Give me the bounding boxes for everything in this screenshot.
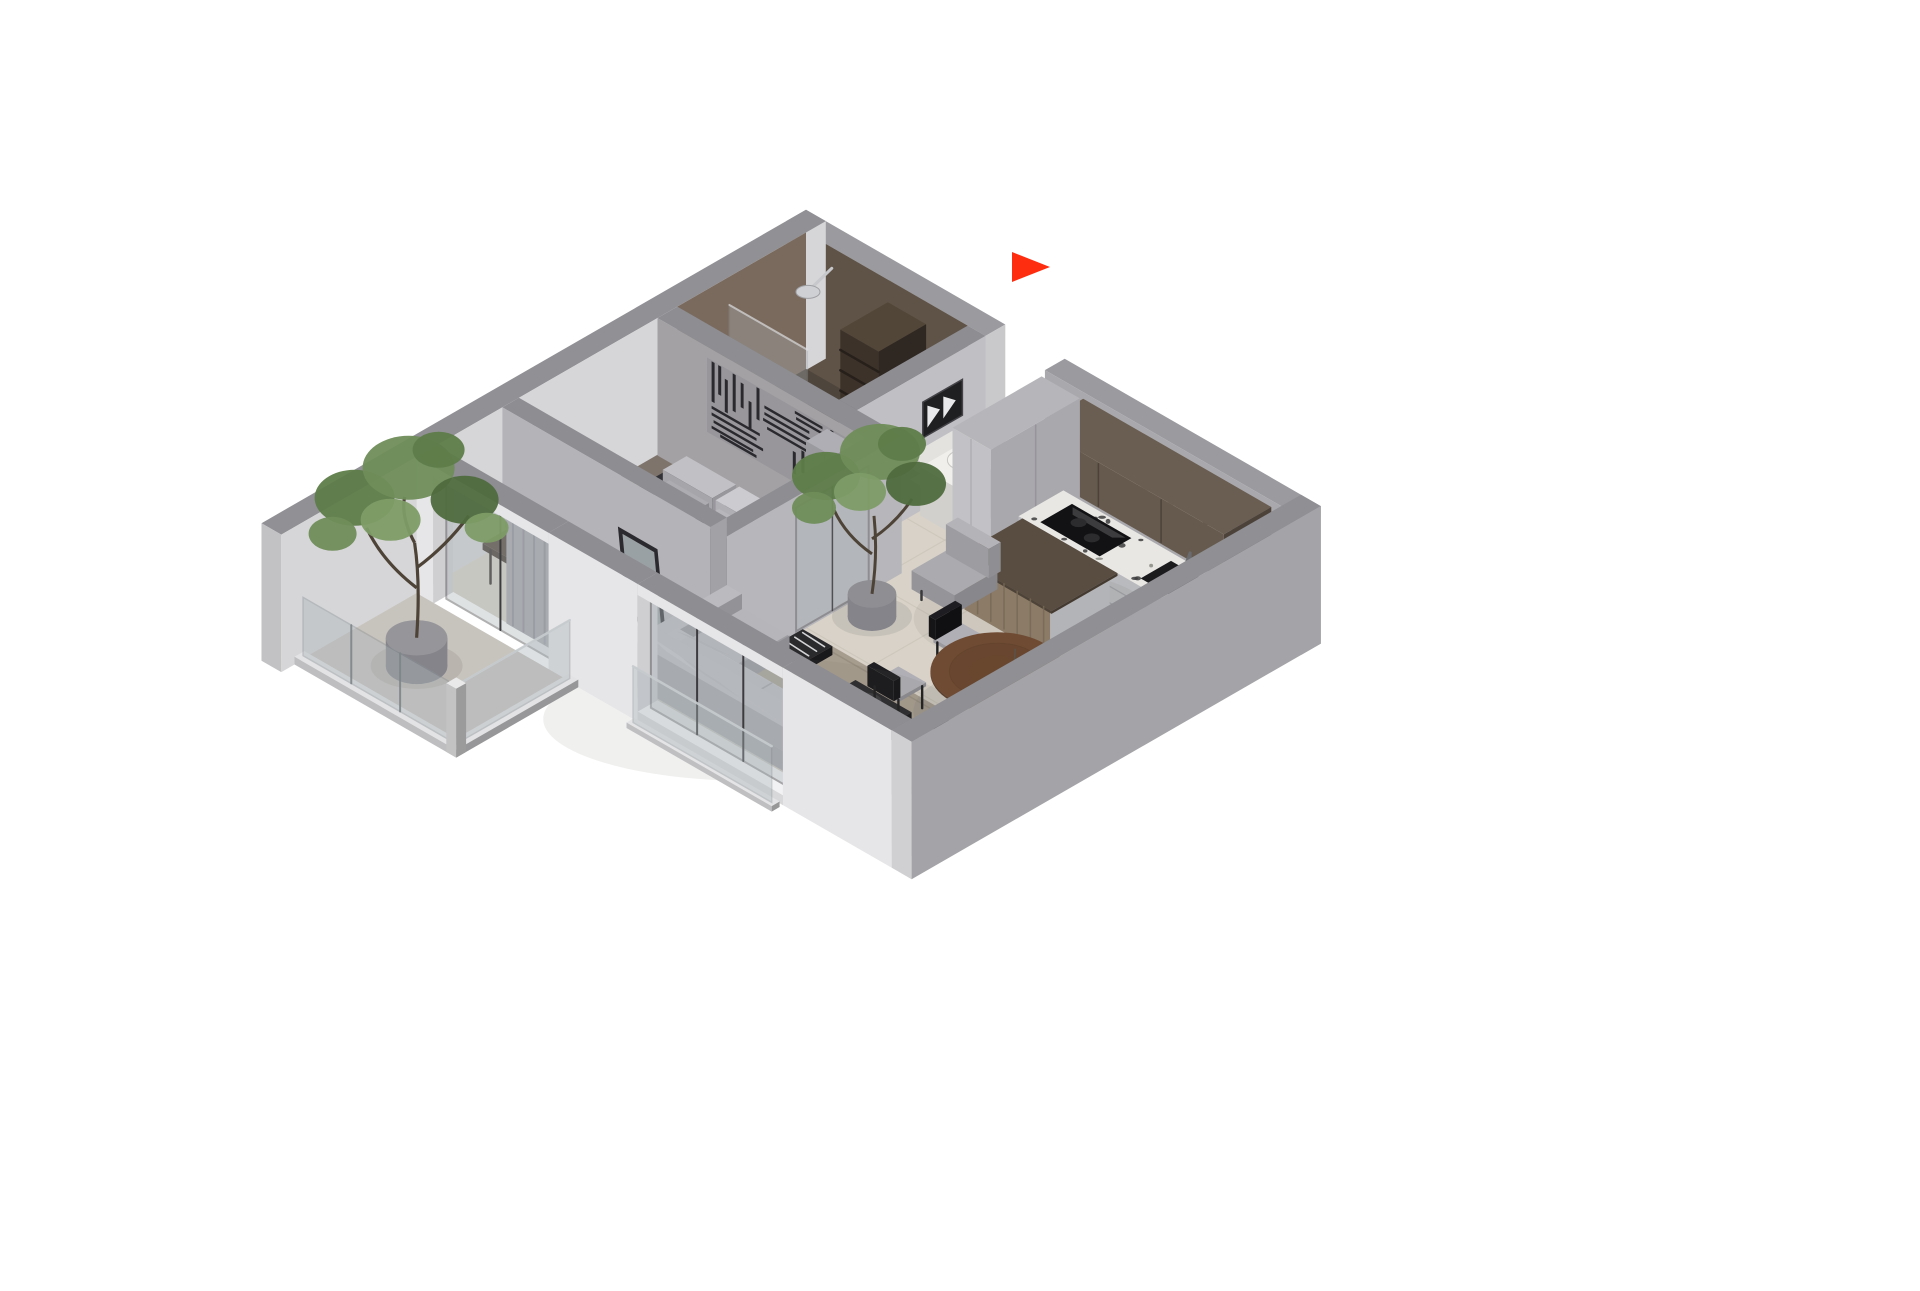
floorplan-page: [0, 0, 1920, 1291]
isometric-floorplan-render: [0, 0, 1920, 1291]
